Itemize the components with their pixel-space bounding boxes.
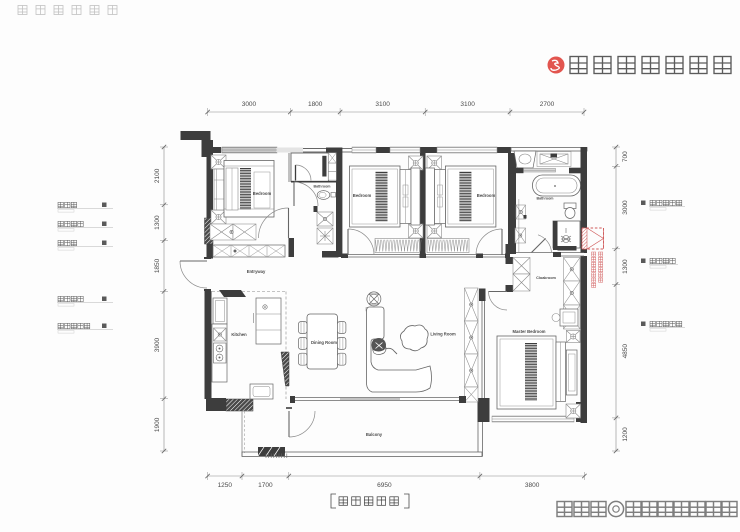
svg-text:3900: 3900 [154,337,161,352]
svg-text:1250: 1250 [218,482,233,489]
svg-text:2100: 2100 [154,168,161,183]
svg-text:4850: 4850 [622,344,629,359]
svg-text:1850: 1850 [154,258,161,273]
svg-text:Master Bedroom: Master Bedroom [512,329,545,334]
svg-text:3000: 3000 [242,101,257,108]
svg-text:1300: 1300 [622,259,629,274]
svg-text:Bathroom: Bathroom [537,197,554,201]
svg-text:Dining Room: Dining Room [311,340,337,345]
svg-text:Cloakroom: Cloakroom [536,276,556,280]
svg-text:700: 700 [622,151,629,162]
svg-text:2700: 2700 [540,101,555,108]
svg-text:Bedroom: Bedroom [353,193,372,198]
svg-text:1900: 1900 [154,417,161,432]
svg-text:3000: 3000 [622,200,629,215]
svg-text:1800: 1800 [308,101,323,108]
svg-text:3100: 3100 [460,101,475,108]
svg-text:Entryway: Entryway [247,269,266,274]
svg-text:Balcony: Balcony [366,432,383,437]
svg-text:Living Room: Living Room [430,332,456,337]
svg-text:3100: 3100 [375,101,390,108]
svg-text:3800: 3800 [525,482,540,489]
svg-text:1700: 1700 [258,482,273,489]
svg-text:Bedroom: Bedroom [253,191,272,196]
svg-text:1200: 1200 [622,427,629,442]
svg-text:1300: 1300 [154,215,161,230]
svg-text:6950: 6950 [377,482,392,489]
svg-text:Bedroom: Bedroom [477,193,496,198]
svg-text:Kitchen: Kitchen [231,332,247,337]
svg-text:Bathroom: Bathroom [314,185,331,189]
